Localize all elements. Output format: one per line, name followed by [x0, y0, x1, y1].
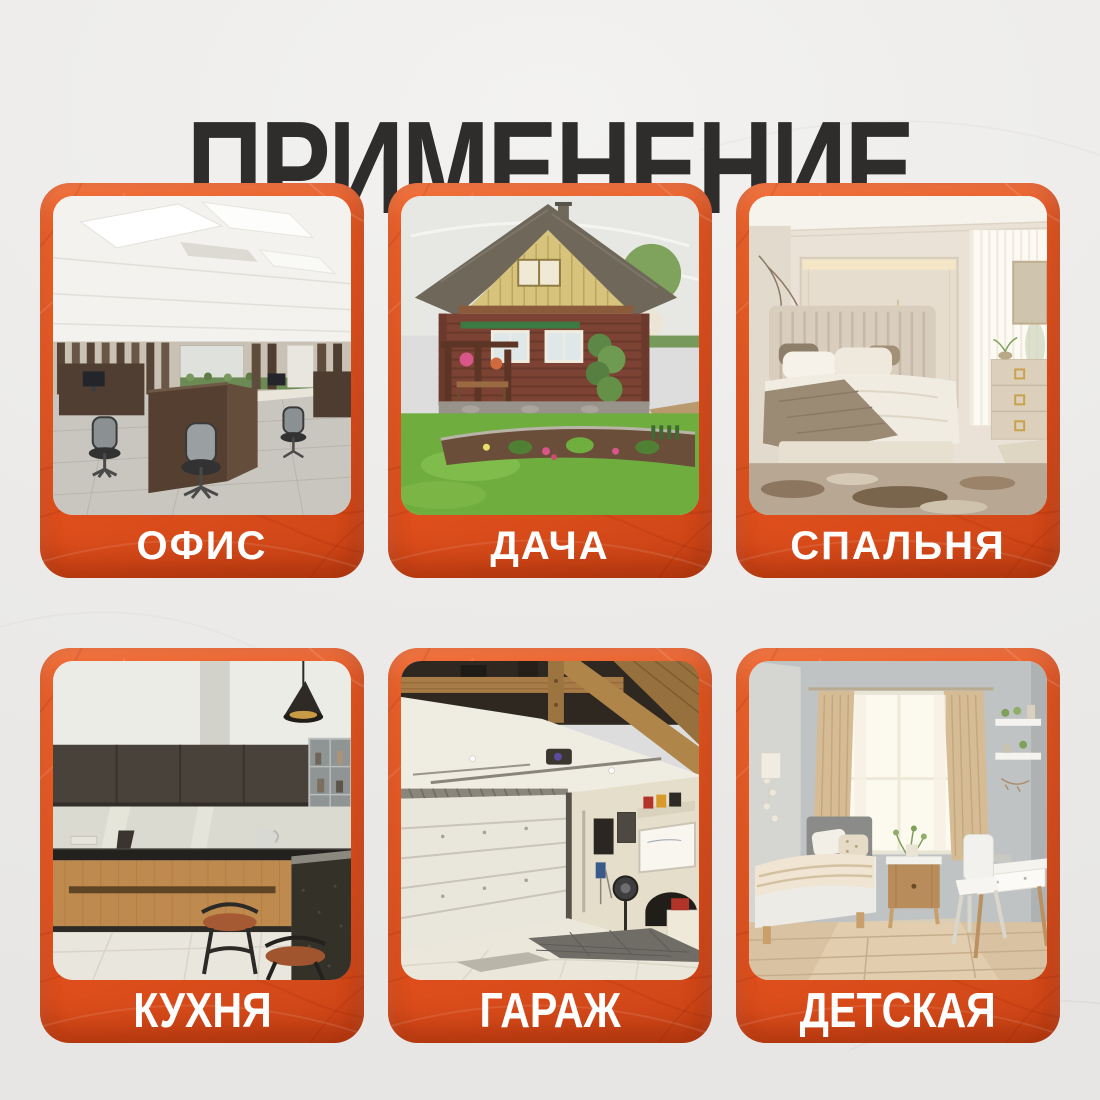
- card-label: ДЕТСКАЯ: [749, 980, 1047, 1042]
- country-house-photo: [401, 196, 699, 515]
- usage-card-garage: ГАРАЖ: [388, 648, 712, 1043]
- garage-photo: [401, 661, 699, 980]
- children-room-photo: [749, 661, 1047, 980]
- usage-card-bedroom: СПАЛЬНЯ: [736, 183, 1060, 578]
- card-label: КУХНЯ: [53, 980, 351, 1042]
- usage-card-kitchen: КУХНЯ: [40, 648, 364, 1043]
- card-label: ОФИС: [53, 515, 351, 577]
- usage-card-office: ОФИС: [40, 183, 364, 578]
- card-label: ДАЧА: [401, 515, 699, 577]
- usage-card-dacha: ДАЧА: [388, 183, 712, 578]
- card-label: СПАЛЬНЯ: [749, 515, 1047, 577]
- office-interior-photo: [53, 196, 351, 515]
- usage-card-children-room: ДЕТСКАЯ: [736, 648, 1060, 1043]
- card-label: ГАРАЖ: [401, 980, 699, 1042]
- bedroom-photo: [749, 196, 1047, 515]
- cards-grid: ОФИС: [40, 183, 1060, 1043]
- kitchen-photo: [53, 661, 351, 980]
- usage-poster: ПРИМЕНЕНИЕ: [0, 0, 1100, 1100]
